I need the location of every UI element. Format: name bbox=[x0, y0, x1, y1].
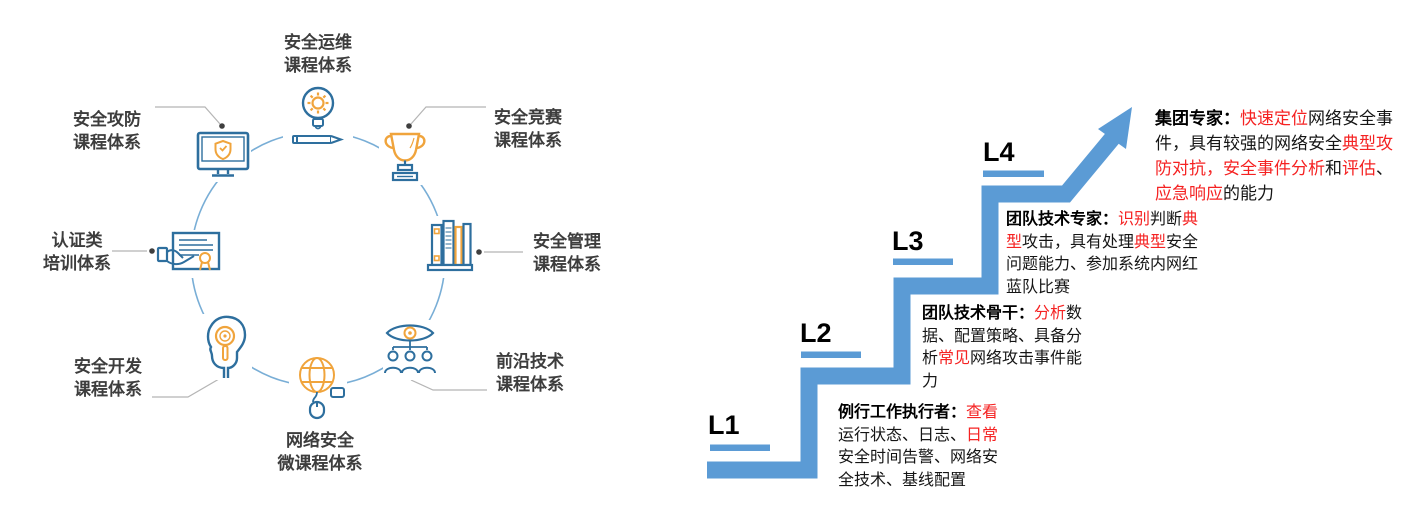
level-label-l2: L2 bbox=[800, 320, 832, 347]
level-label-l1: L1 bbox=[708, 412, 740, 439]
wheel-label-cert: 认证类 培训体系 bbox=[0, 229, 154, 275]
label-line: 安全运维 bbox=[238, 31, 398, 54]
level-text-l3: 团队技术专家：识别判断典型攻击，具有处理典型安全问题能力、参加系统内网红蓝队比赛 bbox=[1006, 209, 1204, 299]
trophy-icon bbox=[379, 129, 431, 185]
wheel-label-network-micro: 网络安全 微课程体系 bbox=[240, 429, 400, 475]
wheel-label-frontier: 前沿技术 课程体系 bbox=[450, 350, 610, 396]
label-line: 课程体系 bbox=[487, 253, 647, 276]
label-line: 网络安全 bbox=[240, 429, 400, 452]
label-line: 课程体系 bbox=[27, 131, 187, 154]
wheel-label-dev: 安全开发 课程体系 bbox=[28, 355, 188, 401]
label-line: 认证类 bbox=[0, 229, 154, 252]
label-line: 课程体系 bbox=[448, 129, 608, 152]
tick-l1 bbox=[710, 445, 770, 452]
level-label-l3: L3 bbox=[892, 228, 924, 255]
wheel-label-attack-defense: 安全攻防 课程体系 bbox=[27, 108, 187, 154]
monitor-shield-icon bbox=[195, 130, 251, 182]
tick-l2 bbox=[801, 352, 861, 359]
wheel-label-management: 安全管理 课程体系 bbox=[487, 230, 647, 276]
head-key-icon bbox=[202, 314, 252, 380]
bulb-gear-icon bbox=[283, 82, 353, 154]
label-line: 安全开发 bbox=[28, 355, 188, 378]
tick-l3 bbox=[893, 259, 953, 266]
label-line: 安全竞赛 bbox=[448, 106, 608, 129]
level-text-l1: 例行工作执行者：查看运行状态、日志、日常安全时间告警、网络安全技术、基线配置 bbox=[838, 402, 1010, 492]
level-label-l4: L4 bbox=[983, 139, 1015, 166]
wheel-label-competition: 安全竞赛 课程体系 bbox=[448, 106, 608, 152]
label-line: 课程体系 bbox=[238, 54, 398, 77]
label-line: 培训体系 bbox=[0, 252, 154, 275]
level-text-l2: 团队技术骨干：分析数据、配置策略、具备分析常见网络攻击事件能力 bbox=[922, 303, 1096, 393]
label-line: 安全攻防 bbox=[27, 108, 187, 131]
books-icon bbox=[424, 216, 476, 278]
label-line: 课程体系 bbox=[450, 373, 610, 396]
level-text-l4: 集团专家：快速定位网络安全事件，具有较强的网络安全典型攻防对抗，安全事件分析和评… bbox=[1155, 106, 1399, 206]
wheel-label-sec-ops: 安全运维 课程体系 bbox=[238, 31, 398, 77]
infographic-canvas: 安全运维 课程体系 安全攻防 课程体系 安全竞赛 课程体系 认证类 培训体系 安… bbox=[0, 0, 1404, 524]
label-line: 安全管理 bbox=[487, 230, 647, 253]
certificate-icon bbox=[156, 230, 222, 278]
globe-mouse-icon bbox=[289, 352, 347, 420]
label-line: 微课程体系 bbox=[240, 452, 400, 475]
label-line: 前沿技术 bbox=[450, 350, 610, 373]
label-line: 课程体系 bbox=[28, 378, 188, 401]
eye-people-icon bbox=[383, 320, 437, 380]
tick-l4 bbox=[983, 171, 1044, 178]
